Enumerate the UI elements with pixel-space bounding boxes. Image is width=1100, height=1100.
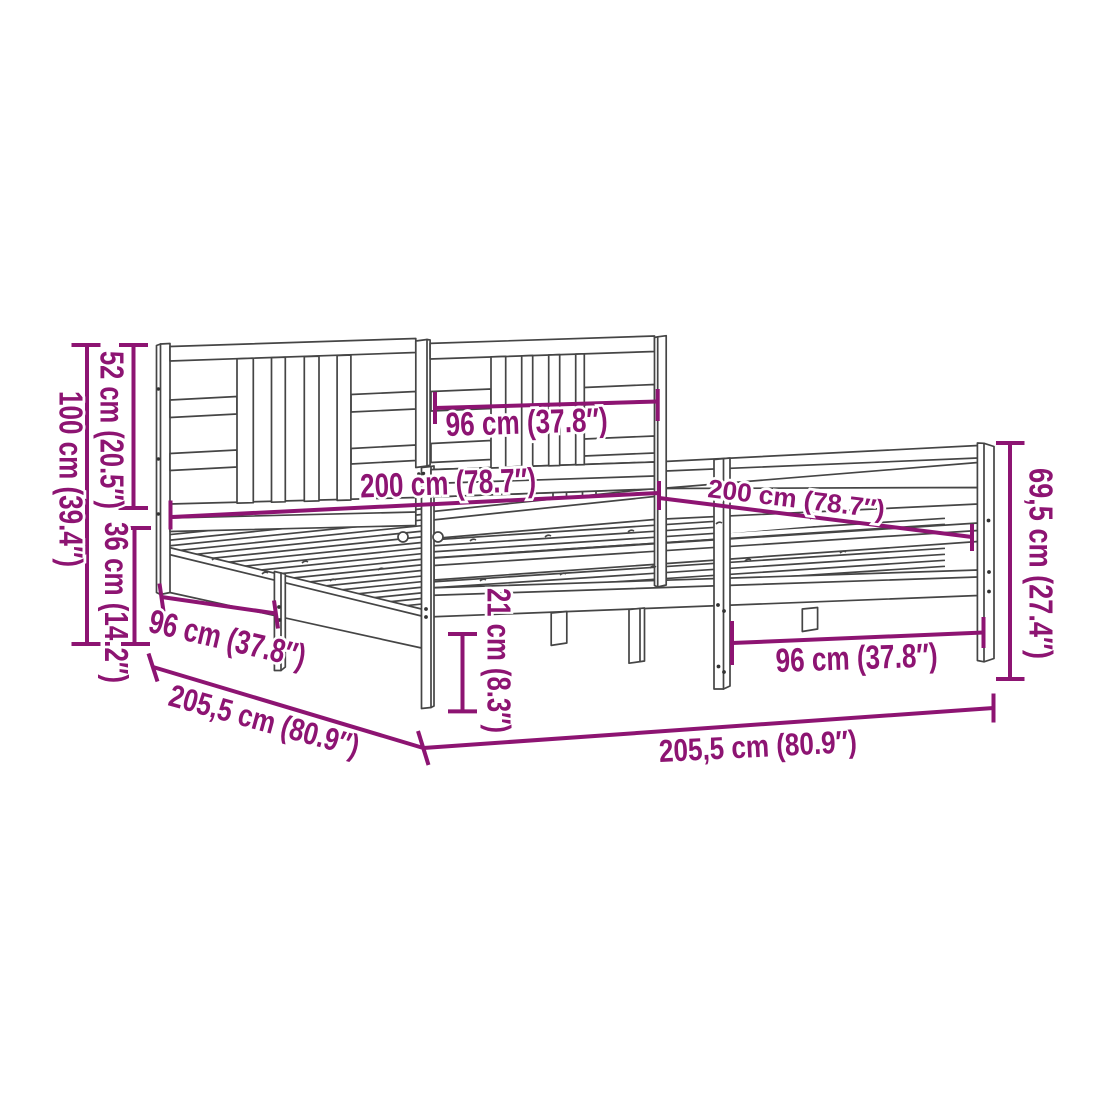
svg-text:96 cm (37.8″): 96 cm (37.8″) (445, 402, 608, 444)
svg-text:96 cm (37.8″): 96 cm (37.8″) (775, 637, 938, 680)
svg-text:69,5 cm (27.4″): 69,5 cm (27.4″) (1022, 468, 1059, 659)
svg-text:36 cm (14.2″): 36 cm (14.2″) (97, 522, 134, 683)
svg-text:200 cm (78.7″): 200 cm (78.7″) (359, 462, 536, 505)
svg-text:52 cm (20.5″): 52 cm (20.5″) (93, 351, 130, 509)
svg-text:100 cm (39.4″): 100 cm (39.4″) (52, 391, 89, 567)
svg-text:21 cm (8.3″): 21 cm (8.3″) (480, 588, 517, 733)
svg-text:205,5 cm (80.9″): 205,5 cm (80.9″) (165, 677, 364, 764)
